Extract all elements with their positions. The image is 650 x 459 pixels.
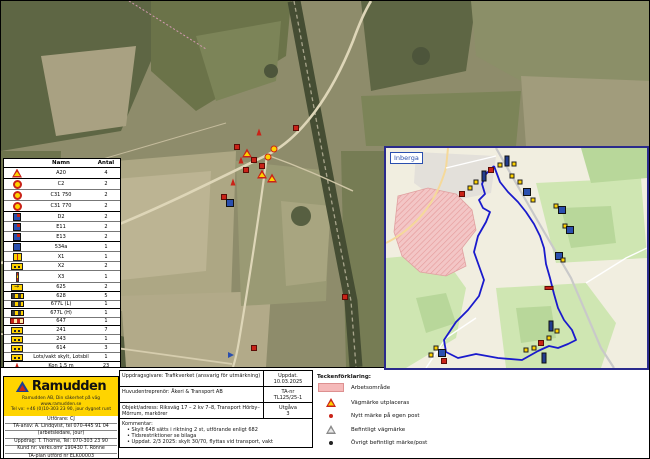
sign-count: 2	[92, 179, 120, 190]
sy-map-marker	[429, 353, 434, 358]
sqblue-map-marker	[523, 188, 531, 196]
title-block-field: Objekt/adress: Riksväg 17 – 2 kv 7–8, Tr…	[120, 403, 264, 418]
flag-map-marker	[228, 352, 234, 358]
sign-count: 1	[92, 242, 120, 252]
sign-count: 1	[92, 353, 120, 362]
sign-count: 5	[92, 292, 120, 301]
legend-item-label: Vägmärke utplaceras	[351, 400, 409, 406]
sign-count: 2	[92, 201, 120, 212]
sign-count: 7	[92, 326, 120, 335]
sign-name: C31 750	[30, 190, 92, 201]
sign-col-count: Antal	[92, 159, 120, 168]
cone-map-marker	[256, 129, 262, 136]
sign-col-icon	[4, 159, 30, 168]
cone-map-marker	[238, 157, 244, 164]
dotred-legend-icon	[329, 414, 333, 418]
title-block-meta-line: 10.03.2025	[266, 379, 310, 385]
company-name: Ramudden	[32, 379, 106, 394]
info-panel: Ramudden Ramudden AB, Din säkerhet på vä…	[1, 367, 650, 459]
title-block-meta: Utgåva3	[264, 403, 312, 418]
title-block-meta: TA-nrTL125/25-1	[264, 387, 312, 402]
legend-panel: Teckenförklaring: ArbetsområdeVägmärke u…	[317, 374, 449, 452]
dotblack-legend-icon	[329, 441, 333, 445]
title-block: Uppdragsgivare: Trafikverket (ansvarig f…	[119, 370, 313, 448]
sign-name: 625	[30, 283, 92, 292]
company-info-line: TA-ansv: A. Lindqvist, tel 070-445 91 04	[5, 423, 117, 430]
sqred-map-marker	[251, 345, 257, 351]
sign-row: D22	[4, 212, 120, 222]
cspeed-sign-icon	[13, 191, 22, 200]
bardark-sign-icon	[11, 301, 24, 307]
comment-line: • Uppdat. 2/3 2025: skylt 30/70, flyttas…	[122, 439, 310, 445]
sqblue-map-marker	[226, 199, 234, 207]
sqred-map-marker	[243, 167, 249, 173]
sign-count: 1	[92, 317, 120, 326]
sign-row: A204	[4, 168, 120, 179]
sqred-map-marker	[234, 144, 240, 150]
sign-count: 2	[92, 262, 120, 271]
company-contact-line: Ramudden AB, Din säkerhet på väg	[6, 396, 116, 402]
sign-count: 1	[92, 271, 120, 283]
sign-row: 6252	[4, 283, 120, 292]
sign-row: X22	[4, 262, 120, 271]
sign-row: Lots/vakt skylt, Lotsbil1	[4, 353, 120, 362]
cone-map-marker	[230, 179, 236, 186]
sy-map-marker	[512, 162, 517, 167]
company-contact-line: Tel vx: +46 (0)10-303 23 90, jour dygnet…	[6, 407, 116, 413]
pole-sign-icon	[16, 272, 19, 282]
sign-row: E132	[4, 232, 120, 242]
sign-name: 241	[30, 326, 92, 335]
inset-place-label: Inberga	[390, 152, 423, 164]
sign-name: E13	[30, 232, 92, 242]
sqblue-sign-icon	[13, 243, 21, 251]
cspeed-sign-icon	[13, 202, 22, 211]
sqred-map-marker	[342, 294, 348, 300]
sign-row: 534a1	[4, 242, 120, 252]
legend-item-label: Befintligt vägmärke	[351, 427, 405, 433]
sign-count: 1	[92, 300, 120, 309]
recty-sign-icon	[11, 336, 23, 343]
sign-row: 677L (L)1	[4, 300, 120, 309]
sign-name: X1	[30, 252, 92, 262]
recty-sign-icon	[11, 345, 23, 352]
sign-name: 677L (L)	[30, 300, 92, 309]
cy-map-marker	[271, 146, 278, 153]
inset-overview-map: Inberga	[384, 146, 649, 370]
sign-row: C31 7702	[4, 201, 120, 212]
recty-sign-icon	[11, 354, 23, 361]
sign-row: 6471	[4, 317, 120, 326]
tri-map-marker	[257, 170, 267, 179]
title-block-meta-line: 3	[266, 411, 310, 417]
sign-name: C31 770	[30, 201, 92, 212]
sign-name: 677L (H)	[30, 309, 92, 318]
ta-plan-sheet: Namn Antal A204C22C31 7502C31 7702D22E11…	[0, 0, 650, 459]
sqred-map-marker	[251, 157, 257, 163]
sign-name: X2	[30, 262, 92, 271]
sign-list-table: Namn Antal A204C22C31 7502C31 7702D22E11…	[4, 159, 120, 388]
legend-item: Övrigt befintligt märke/post	[317, 440, 449, 446]
cy-map-marker	[265, 154, 272, 161]
navy-map-marker	[549, 321, 554, 332]
sy-map-marker	[518, 180, 523, 185]
sign-name: A20	[30, 168, 92, 179]
sqred-map-marker	[459, 191, 465, 197]
barstripe-sign-icon	[10, 318, 24, 324]
company-info-line: Kund nr: verks.omr 190430 T. Rönne	[5, 445, 117, 452]
sqred-map-marker	[538, 340, 544, 346]
sign-name: 647	[30, 317, 92, 326]
inset-map-markers	[386, 148, 647, 368]
sign-row: C22	[4, 179, 120, 190]
sqblue-map-marker	[566, 226, 574, 234]
sign-name: E11	[30, 222, 92, 232]
sqred-map-marker	[441, 358, 447, 364]
sign-list-panel: Namn Antal A204C22C31 7502C31 7702D22E11…	[3, 158, 121, 389]
sqred-map-marker	[488, 167, 494, 173]
sign-count: 1	[92, 252, 120, 262]
legend-item: Vägmärke utplaceras	[317, 398, 449, 407]
title-block-field: Uppdragsgivare: Trafikverket (ansvarig f…	[120, 371, 264, 386]
recty-sign-icon	[11, 327, 23, 334]
sy-map-marker	[524, 348, 529, 353]
sign-row: E112	[4, 222, 120, 232]
sign-col-name: Namn	[30, 159, 92, 168]
sy-map-marker	[468, 186, 473, 191]
sign-name: Lots/vakt skylt, Lotsbil	[30, 353, 92, 362]
sign-row: 2417	[4, 326, 120, 335]
title-block-field: Huvudentreprenör: Åkeri & Transport AB	[120, 387, 264, 402]
sign-row: 677L (H)1	[4, 309, 120, 318]
company-contact-lines: Ramudden AB, Din säkerhet på vägwww.ramu…	[6, 396, 116, 413]
sign-count: 2	[92, 212, 120, 222]
tri-map-marker	[267, 174, 277, 183]
sqbluemix-sign-icon	[13, 213, 21, 221]
sy-map-marker	[547, 336, 552, 341]
sqblue-map-marker	[438, 349, 446, 357]
title-block-row: Objekt/adress: Riksväg 17 – 2 kv 7–8, Tr…	[120, 403, 312, 419]
legend-item: Nytt märke på egen post	[317, 413, 449, 419]
sign-name: 614	[30, 344, 92, 353]
sign-count: 2	[92, 232, 120, 242]
tri-legend-icon	[326, 398, 336, 407]
sign-row: 6285	[4, 292, 120, 301]
legend-item-label: Övrigt befintligt märke/post	[351, 440, 427, 446]
comment-section: Kommentar: • Skylt 648 sätts i riktning …	[120, 419, 312, 447]
srwide-map-marker	[545, 286, 554, 290]
navy-map-marker	[505, 156, 510, 167]
sign-count: 2	[92, 190, 120, 201]
sy-map-marker	[531, 198, 536, 203]
sqbluemix-sign-icon	[13, 223, 21, 231]
swatchpink-legend-icon	[318, 383, 344, 392]
sy-map-marker	[555, 329, 560, 334]
sign-name: D2	[30, 212, 92, 222]
company-info-line: (arbetsledare, jour)	[5, 430, 117, 437]
sign-name: 628	[30, 292, 92, 301]
sy-map-marker	[510, 174, 515, 179]
sign-count: 2	[92, 283, 120, 292]
sqbluemix-sign-icon	[13, 233, 21, 241]
sign-count: 4	[92, 168, 120, 179]
sqred-map-marker	[259, 163, 265, 169]
rectsplit-sign-icon	[13, 253, 22, 261]
bardark-sign-icon	[11, 310, 24, 316]
legend-item: Arbetsområde	[317, 383, 449, 392]
navy-map-marker	[542, 353, 547, 364]
navy-map-marker	[482, 171, 487, 182]
tri-sign-icon	[12, 169, 22, 178]
sign-name: C2	[30, 179, 92, 190]
legend-item-label: Arbetsområde	[351, 385, 390, 391]
sign-row: X31	[4, 271, 120, 283]
company-info-lines: Utförare: CJTA-ansv: A. Lindqvist, tel 0…	[4, 416, 118, 459]
bardark-sign-icon	[11, 293, 24, 299]
arrow-sign-icon	[11, 284, 23, 291]
sy-map-marker	[561, 258, 566, 263]
sign-count: 1	[92, 309, 120, 318]
title-block-meta: Uppdat.10.03.2025	[264, 371, 312, 386]
cred-sign-icon	[13, 180, 22, 189]
title-block-row: Uppdragsgivare: Trafikverket (ansvarig f…	[120, 371, 312, 387]
legend-title: Teckenförklaring:	[317, 374, 449, 380]
sy-map-marker	[498, 163, 503, 168]
trigray-legend-icon	[326, 425, 336, 434]
company-info-line: Uppdrag: T. Thorne, Tel: 070-303 23 90	[5, 438, 117, 445]
title-block-meta-line: TL125/25-1	[266, 395, 310, 401]
sign-count: 2	[92, 222, 120, 232]
recty-sign-icon	[11, 263, 23, 270]
sign-row: C31 7502	[4, 190, 120, 201]
sign-row: X11	[4, 252, 120, 262]
sign-name: X3	[30, 271, 92, 283]
sign-name: 534a	[30, 242, 92, 252]
legend-item: Befintligt vägmärke	[317, 425, 449, 434]
sy-map-marker	[474, 180, 479, 185]
sign-name: 243	[30, 335, 92, 344]
legend-item-label: Nytt märke på egen post	[351, 413, 420, 419]
sy-map-marker	[532, 346, 537, 351]
company-logo-box: Ramudden Ramudden AB, Din säkerhet på vä…	[4, 377, 118, 416]
sign-row: 6143	[4, 344, 120, 353]
sign-count: 3	[92, 344, 120, 353]
title-block-row: Huvudentreprenör: Åkeri & Transport ABTA…	[120, 387, 312, 403]
company-block: Ramudden Ramudden AB, Din säkerhet på vä…	[3, 376, 119, 459]
company-info-line: TA-plan utförd nr ELK00003	[5, 453, 117, 459]
ramudden-logo-icon	[16, 381, 29, 392]
sign-count: 1	[92, 335, 120, 344]
sign-row: 2431	[4, 335, 120, 344]
sqred-map-marker	[293, 125, 299, 131]
sqblue-map-marker	[558, 206, 566, 214]
